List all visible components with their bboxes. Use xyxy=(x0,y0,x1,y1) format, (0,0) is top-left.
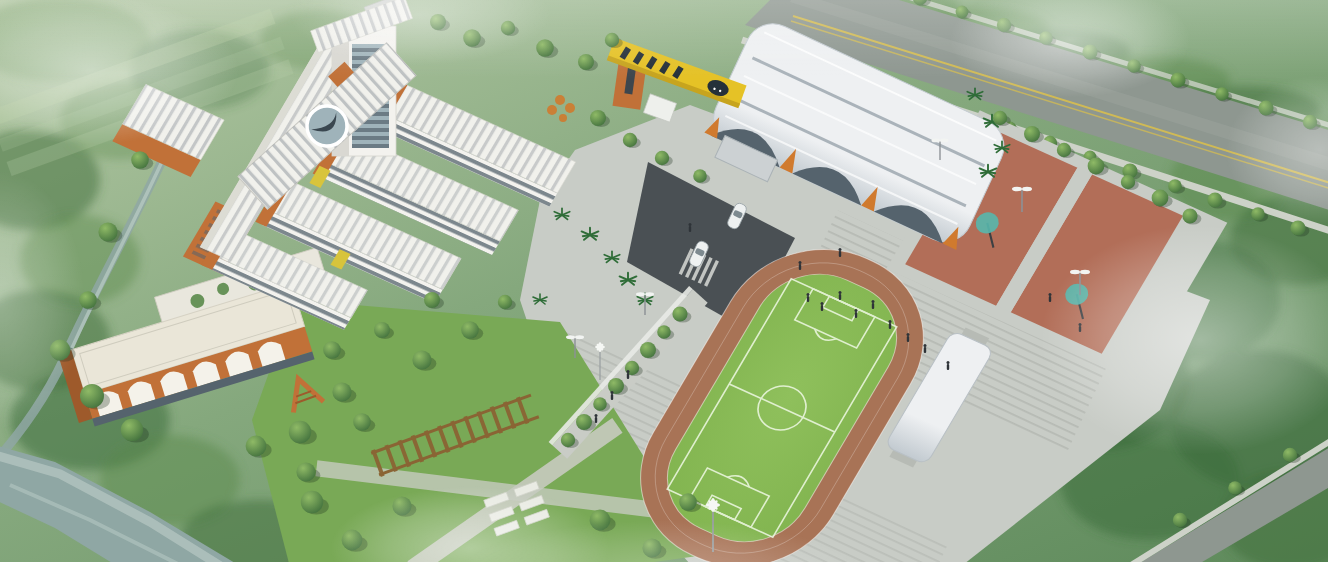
campus-rendering xyxy=(0,0,1328,562)
campus-rendering-canvas xyxy=(0,0,1328,562)
